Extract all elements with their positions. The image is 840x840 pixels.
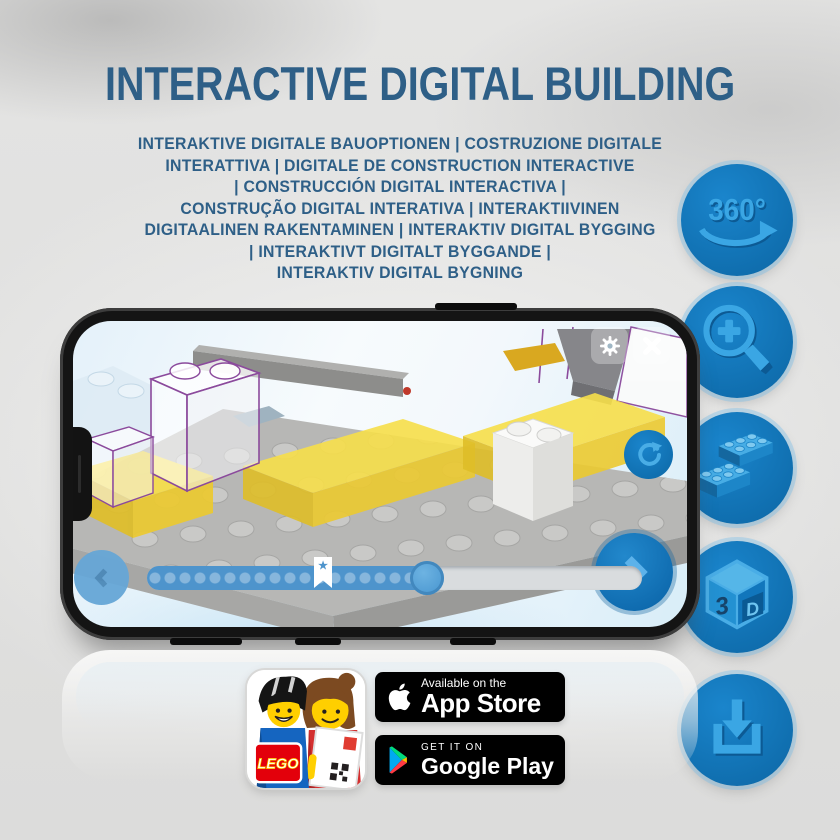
google-play-tagline: GET IT ON <box>421 742 554 754</box>
white-brick <box>493 419 573 521</box>
phone-volume-button <box>170 638 242 645</box>
lego-app-icon[interactable]: LEGO <box>245 668 367 790</box>
lego-minifigures-illustration: LEGO <box>247 670 365 788</box>
subtitle-line: | CONSTRUCCIÓN DIGITAL INTERACTIVA | <box>93 176 707 198</box>
ghost-brick-purple <box>87 427 153 507</box>
rotate-view-button[interactable] <box>624 430 673 479</box>
google-play-label: Google Play <box>421 754 554 779</box>
feature-360-rotation: 360° <box>681 164 793 276</box>
subtitle-line: | INTERAKTIVT DIGITALT BYGGANDE | <box>93 241 707 263</box>
app-store-badge[interactable]: Available on the App Store <box>375 672 565 722</box>
phone-mute-switch <box>450 638 496 645</box>
phone-speaker <box>78 455 81 493</box>
phone-screen: ★ <box>73 321 687 627</box>
previous-step-button[interactable] <box>74 550 129 605</box>
zoom-in-icon <box>689 294 785 390</box>
phone-notch <box>73 427 92 521</box>
page-title-text: INTERACTIVE DIGITAL BUILDING <box>105 56 735 111</box>
phone-volume-button <box>295 638 341 645</box>
subtitle-line: DIGITAALINEN RAKENTAMINEN | INTERAKTIV D… <box>93 219 707 241</box>
page-title: INTERACTIVE DIGITAL BUILDING <box>0 56 840 111</box>
build-progress-bar[interactable]: ★ <box>147 566 642 590</box>
subtitle-line: INTERAKTIVE DIGITALE BAUOPTIONEN | COSTR… <box>93 133 707 155</box>
close-icon <box>641 335 663 357</box>
apple-icon <box>375 681 421 713</box>
360-rotation-icon: 360° <box>708 197 766 223</box>
page-background: INTERACTIVE DIGITAL BUILDING INTERAKTIVE… <box>0 0 840 840</box>
lego-logo-text: LEGO <box>257 757 299 773</box>
google-play-badge[interactable]: GET IT ON Google Play <box>375 735 565 785</box>
subtitle-line: INTERAKTIV DIGITAL BYGNING <box>93 262 707 284</box>
subtitle-line: INTERATTIVA | DIGITALE DE CONSTRUCTION I… <box>93 155 707 177</box>
lego-brick-icon <box>689 420 785 516</box>
refresh-icon <box>634 440 664 470</box>
settings-button[interactable] <box>591 327 628 364</box>
progress-fill <box>147 566 427 590</box>
subtitle: INTERAKTIVE DIGITALE BAUOPTIONEN | COSTR… <box>70 133 730 284</box>
chevron-left-icon <box>89 565 115 591</box>
google-play-icon <box>375 745 421 775</box>
close-button[interactable] <box>633 327 670 364</box>
download-icon <box>689 682 785 778</box>
phone-power-button <box>435 303 517 310</box>
gear-icon <box>598 334 622 358</box>
subtitle-line: CONSTRUÇÃO DIGITAL INTERATIVA | INTERAKT… <box>93 198 707 220</box>
app-store-label: App Store <box>421 690 541 717</box>
progress-handle[interactable] <box>410 561 444 595</box>
3d-cube-icon: 3 D <box>689 549 785 645</box>
phone-mockup: ★ <box>60 308 700 640</box>
